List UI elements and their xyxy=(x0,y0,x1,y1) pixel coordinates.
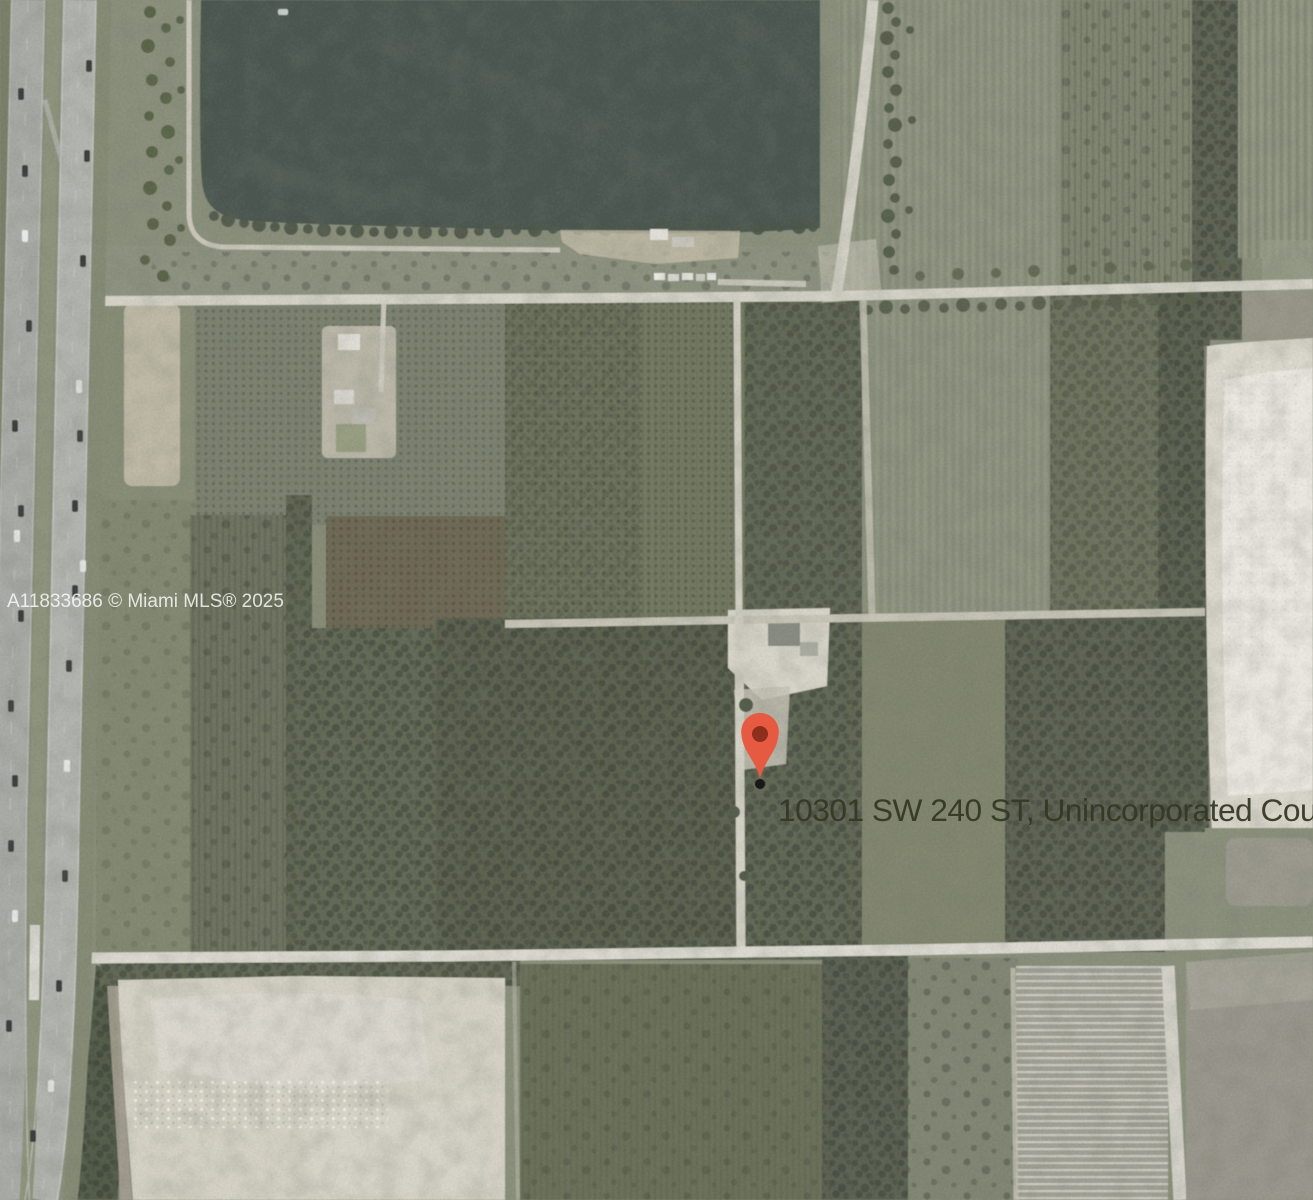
svg-text:A11833686 © Miami MLS® 2025: A11833686 © Miami MLS® 2025 xyxy=(7,591,284,612)
svg-text:10301 SW 240 ST, Unincorporate: 10301 SW 240 ST, Unincorporated County xyxy=(778,792,1313,828)
